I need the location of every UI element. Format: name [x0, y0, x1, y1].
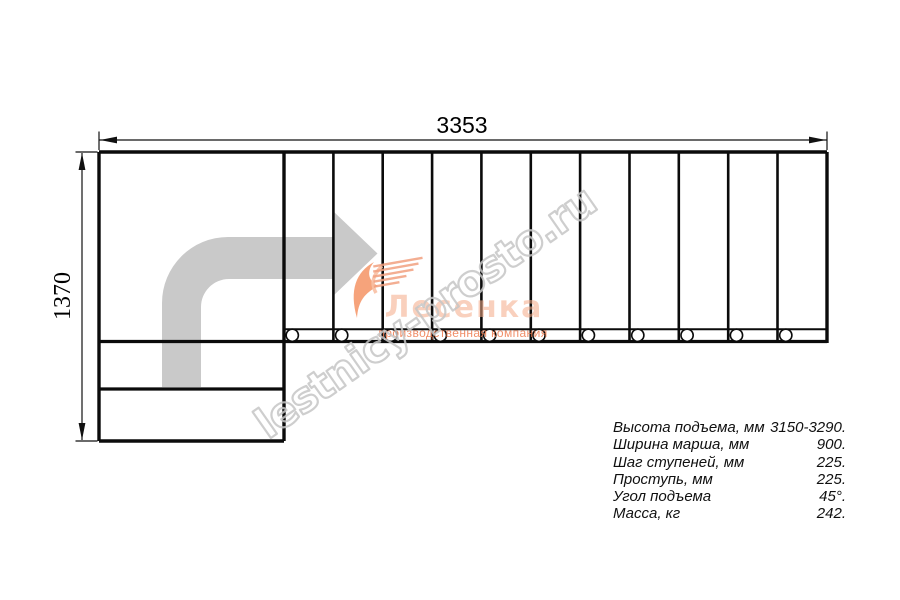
baluster-circle: [286, 329, 298, 341]
baluster-circle: [730, 329, 742, 341]
spec-value: 242.: [817, 505, 846, 522]
baluster-circle: [780, 329, 792, 341]
spec-label: Ширина марша, мм: [613, 436, 749, 453]
baluster-circle: [582, 329, 594, 341]
baluster-circle: [681, 329, 693, 341]
dim-arrow-right: [809, 137, 826, 144]
dim-arrow-left: [100, 137, 117, 144]
spec-label: Угол подъема: [613, 488, 711, 505]
spec-label: Высота подъема, мм: [613, 419, 765, 436]
stair-plan-canvas: 3353 1370 Лесенка производственная компа…: [0, 0, 900, 600]
dim-arrow-down: [79, 423, 86, 440]
dimension-height-label: 1370: [50, 272, 76, 320]
spec-row: Масса, кг 242.: [613, 505, 846, 522]
dimension-width-label: 3353: [436, 112, 487, 138]
spec-row: Проступь, мм 225.: [613, 471, 846, 488]
dim-arrow-up: [79, 153, 86, 170]
spec-row: Ширина марша, мм 900.: [613, 436, 846, 453]
spec-value: 225.: [817, 471, 846, 488]
watermark-text: lestnicy-prosto.ru: [246, 176, 605, 448]
spec-value: 3150-3290.: [770, 419, 846, 436]
spec-row: Шаг ступеней, мм 225.: [613, 454, 846, 471]
spec-value: 900.: [817, 436, 846, 453]
specs-table: Высота подъема, мм 3150-3290. Ширина мар…: [613, 419, 846, 523]
spec-label: Масса, кг: [613, 505, 680, 522]
spec-value: 45°.: [819, 488, 846, 505]
spec-row: Высота подъема, мм 3150-3290.: [613, 419, 846, 436]
spec-label: Проступь, мм: [613, 471, 713, 488]
baluster-circle: [632, 329, 644, 341]
spec-label: Шаг ступеней, мм: [613, 454, 744, 471]
spec-value: 225.: [817, 454, 846, 471]
spec-row: Угол подъема 45°.: [613, 488, 846, 505]
